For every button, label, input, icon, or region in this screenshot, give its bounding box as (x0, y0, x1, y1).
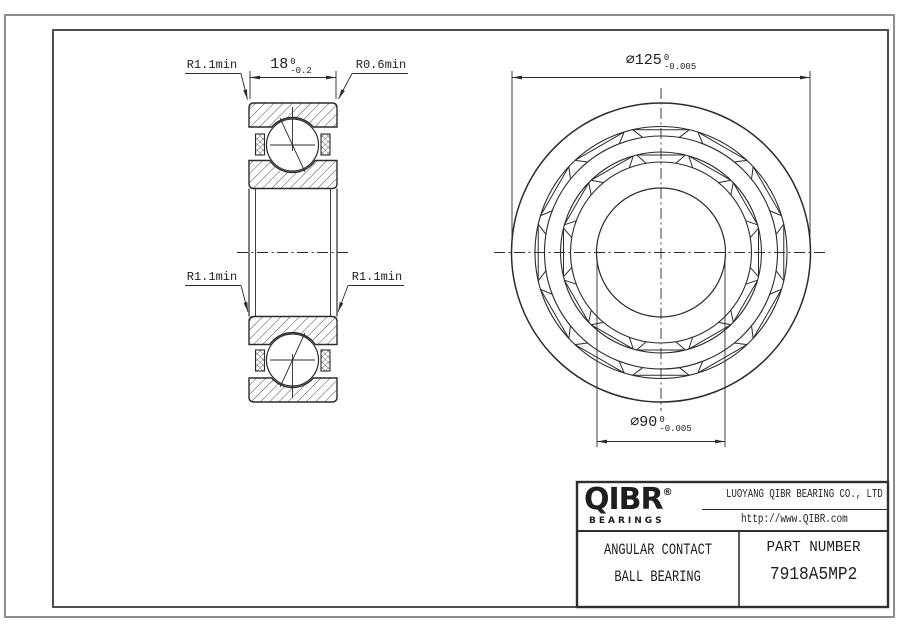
width-tolerance: 0 -0.2 (290, 56, 312, 77)
radius-label-top-right: R0.6min (353, 59, 409, 72)
logo-text: QIBR (584, 482, 663, 517)
radius-label-mid-left: R1.1min (184, 271, 240, 284)
part-number-label: PART NUMBER (739, 540, 888, 556)
radius-label-mid-right: R1.1min (349, 271, 405, 284)
page-borders (5, 15, 894, 617)
outer-diameter-value: ∅125 (626, 52, 662, 69)
cage-section-top-left (256, 134, 265, 155)
logo-subtext: BEARINGS (589, 516, 673, 526)
bore-diameter-tolerance: 0 -0.005 (659, 414, 691, 435)
company-website: http://www.QIBR.com (700, 512, 888, 526)
part-number-value: 7918A5MP2 (739, 566, 888, 585)
cage-section-bottom-right (321, 350, 330, 371)
company-logo: QIBR® BEARINGS (584, 484, 673, 526)
product-type-line1: ANGULAR CONTACT (577, 542, 739, 559)
section-view (237, 103, 351, 402)
width-dimension-text: 18 0 -0.2 (229, 56, 353, 77)
cage-section-bottom-left (256, 350, 265, 371)
width-value: 18 (270, 56, 288, 73)
cage-section-top-right (321, 134, 330, 155)
drawing-page: 18 0 -0.2 R1.1min R0.6min R1.1min R1.1mi… (0, 0, 900, 636)
outer-diameter-dimension-text: ∅125 0 -0.005 (601, 52, 721, 73)
product-type-line2: BALL BEARING (577, 569, 739, 586)
radius-label-top-left: R1.1min (184, 59, 240, 72)
registered-trademark-symbol: ® (663, 487, 673, 498)
outer-diameter-tolerance: 0 -0.005 (664, 52, 696, 73)
bore-diameter-dimension-text: ∅90 0 -0.005 (601, 414, 721, 435)
front-view (494, 88, 828, 411)
bore-diameter-value: ∅90 (630, 414, 657, 431)
company-name: LUOYANG QIBR BEARING CO., LTD (700, 487, 888, 501)
